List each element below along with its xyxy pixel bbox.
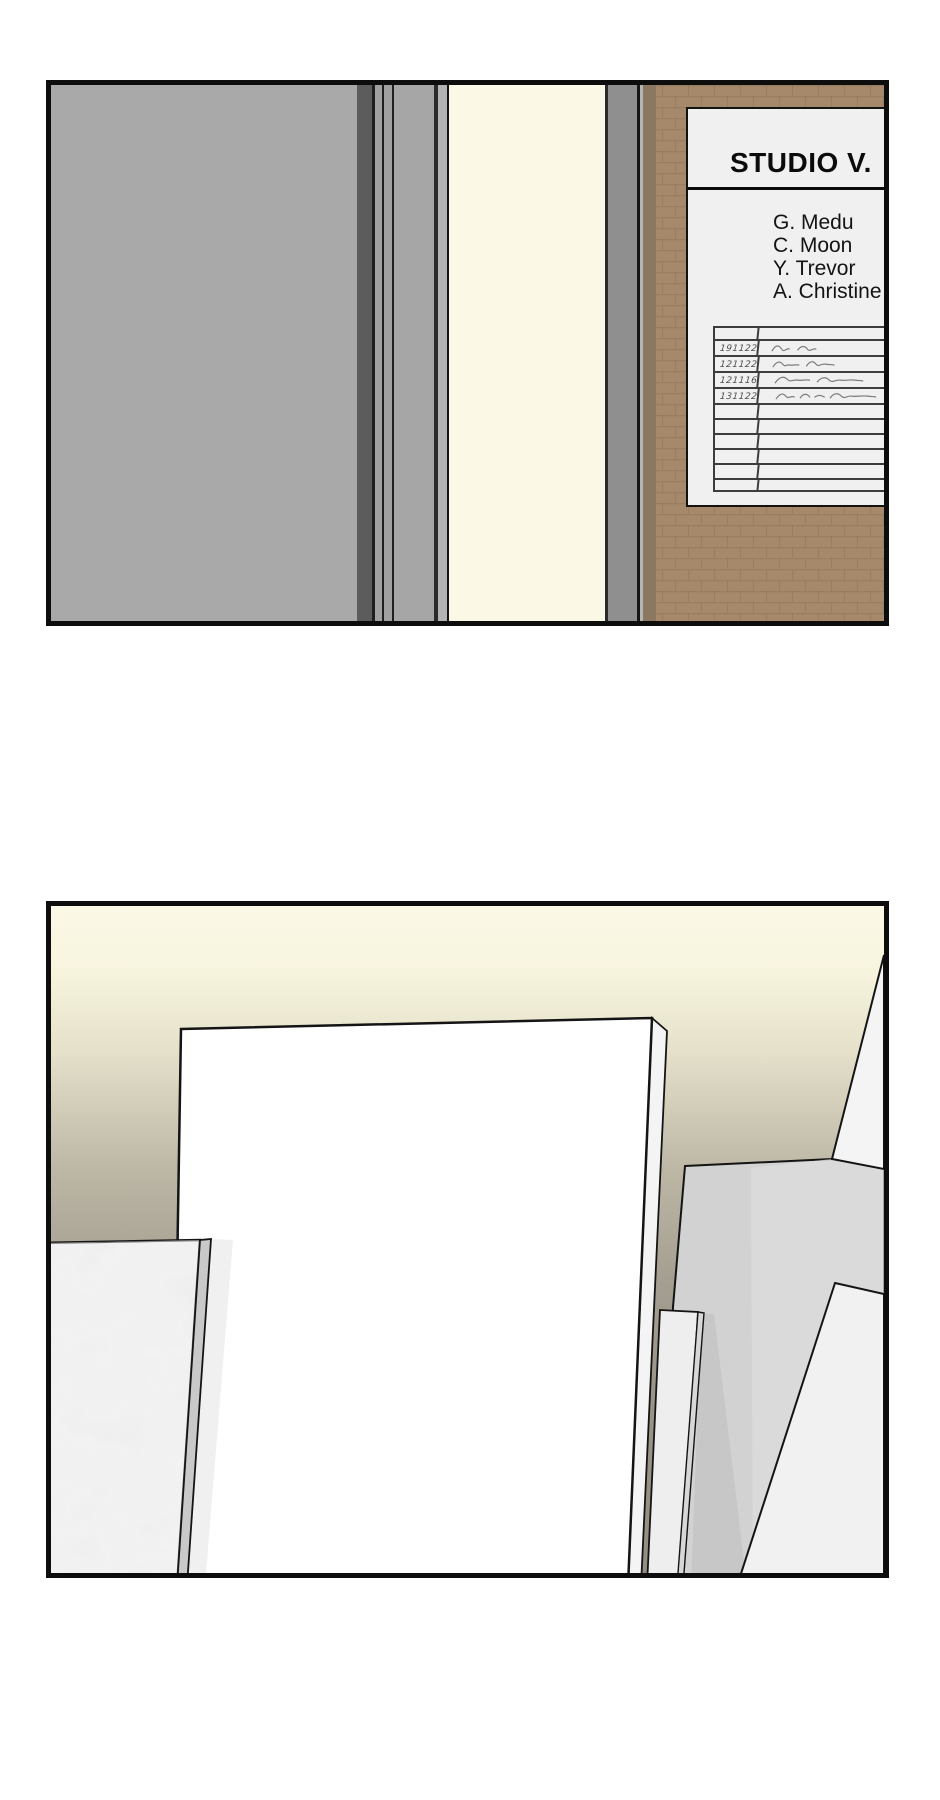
logbook-row: 121116 — [715, 373, 889, 389]
member-name: Y. Trevor — [773, 257, 882, 280]
logbook-signature-cell — [759, 389, 889, 403]
member-name: C. Moon — [773, 234, 882, 257]
logbook-row — [715, 465, 889, 480]
frame-strip-a — [375, 85, 382, 621]
logbook-signature-cell — [759, 328, 889, 339]
logbook-signature-cell — [759, 373, 889, 387]
wall-left — [51, 85, 357, 621]
comic-page: STUDIO V. G. MeduC. MoonY. TrevorA. Chri… — [0, 0, 940, 1800]
logbook-row — [715, 435, 889, 450]
logbook-signature-cell — [759, 341, 889, 355]
logbook-signature-cell — [759, 465, 889, 478]
logbook-date — [714, 480, 759, 490]
logbook-date — [714, 420, 759, 433]
frame-strip-c — [438, 85, 447, 621]
logbook-signature-cell — [759, 357, 889, 371]
logbook-date: 131122 — [714, 389, 759, 403]
logbook-date: 121122 — [714, 357, 759, 371]
logbook-date — [714, 405, 759, 418]
logbook-signature-cell — [759, 450, 889, 463]
logbook-row — [715, 420, 889, 435]
logbook-signature-cell — [759, 480, 889, 490]
studio-sign: STUDIO V. G. MeduC. MoonY. TrevorA. Chri… — [686, 107, 889, 507]
logbook-row — [715, 450, 889, 465]
panel-canvas-storage — [46, 901, 889, 1578]
large-blank-canvas — [172, 1018, 652, 1573]
frame-shadow — [357, 85, 372, 621]
logbook-signature-cell — [759, 435, 889, 448]
signature-scribble — [765, 375, 873, 387]
logbook-signature-cell — [759, 420, 889, 433]
logbook-date — [714, 435, 759, 448]
logbook-date: 191122 — [714, 341, 759, 355]
logbook-row: 121122 — [715, 357, 889, 373]
panel-door-sign: STUDIO V. G. MeduC. MoonY. TrevorA. Chri… — [46, 80, 889, 626]
logbook-date — [714, 328, 759, 339]
logbook-date: 121116 — [714, 373, 759, 387]
logbook-signature-cell — [759, 405, 889, 418]
frame-strip-b — [384, 85, 392, 621]
logbook-row — [715, 480, 889, 490]
signature-scribble — [765, 359, 843, 371]
logbook-date — [714, 465, 759, 478]
signature-scribble — [765, 343, 829, 355]
member-list: G. MeduC. MoonY. TrevorA. Christine — [773, 211, 882, 303]
logbook-row: 131122 — [715, 389, 889, 405]
logbook-row: 191122 — [715, 341, 889, 357]
logbook-date — [714, 450, 759, 463]
logbook-row — [715, 405, 889, 420]
door-light-gap — [449, 85, 605, 621]
wall-shadow-band — [643, 85, 656, 621]
frame-right — [608, 85, 637, 621]
signature-scribble — [765, 391, 887, 403]
canvas-storage-scene — [51, 906, 884, 1573]
door-edge — [394, 85, 434, 621]
sign-in-table: 191122121122121116131122 — [713, 326, 889, 492]
member-name: A. Christine — [773, 280, 882, 303]
sign-title: STUDIO V. — [688, 147, 889, 190]
member-name: G. Medu — [773, 211, 882, 234]
logbook-row — [715, 328, 889, 341]
